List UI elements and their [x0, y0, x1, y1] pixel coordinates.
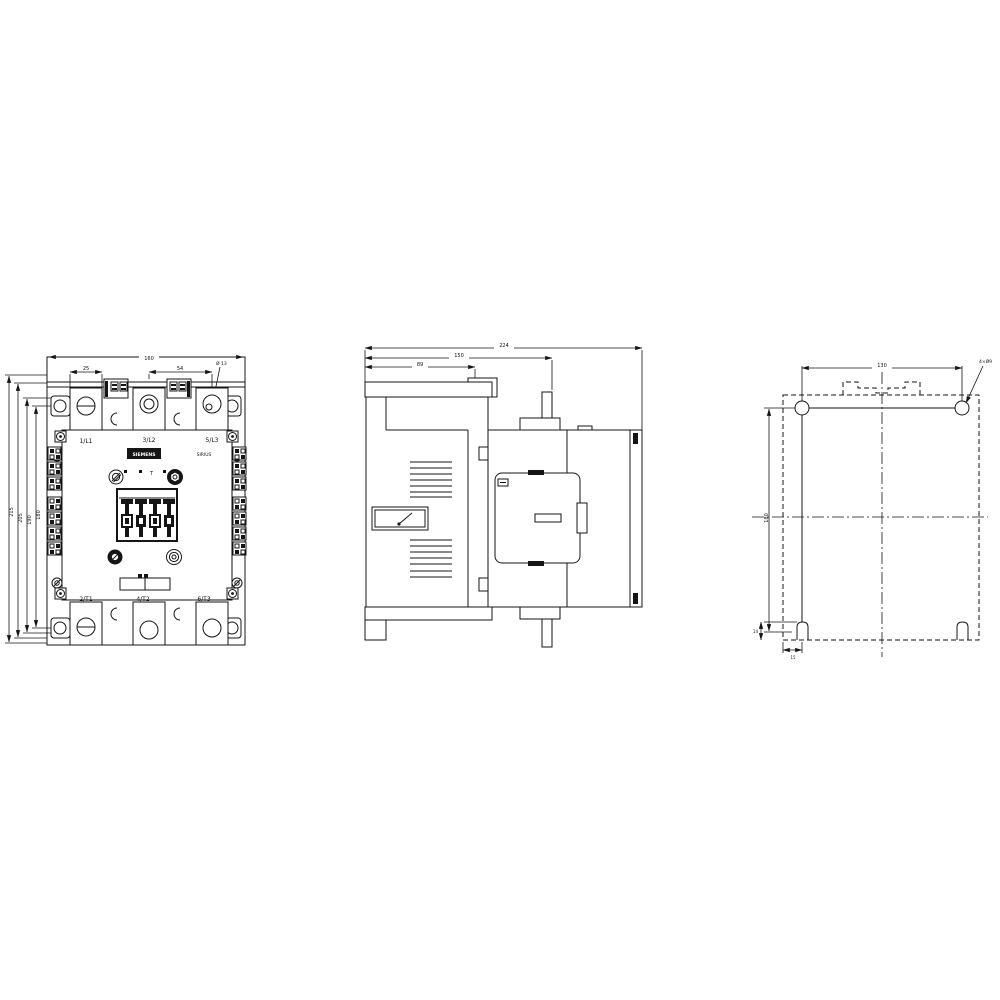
terminal-hole-L3: [203, 395, 221, 413]
clip-hook: [111, 608, 117, 620]
vent-slats-lower: [410, 540, 452, 577]
plate-tab: [138, 574, 142, 578]
dim-pole-pitch: 54: [177, 366, 183, 372]
contactor-dimension-drawing: 215 205 190 180 25 54 Ø 13 160: [0, 0, 1000, 1000]
bottom-terminal-shelf: [365, 607, 492, 620]
mounting-view: 130 4×Ø9 180 14 15: [752, 358, 992, 660]
dim-slot-height: 14: [753, 629, 759, 634]
dim-hole-pitch-v: 180: [764, 513, 770, 523]
coil-mark-dot: [124, 470, 127, 473]
rear-rail: [630, 430, 642, 607]
coil-mark-dot: [163, 470, 166, 473]
clip-hook: [174, 608, 180, 620]
din-tab-bottom: [542, 619, 552, 647]
side-foot: [365, 620, 386, 640]
coil-mark-dot: [139, 470, 142, 473]
mounting-hole-note: 4×Ø9: [979, 358, 992, 365]
brand-label: SIEMENS: [132, 452, 155, 458]
terminal-label-3L2: 3/L2: [143, 437, 156, 444]
accessory-slot: [535, 514, 561, 522]
dim-height-outer: 215: [9, 507, 15, 517]
aux-contact-strip-right: [233, 447, 246, 555]
mounting-slot-left: [797, 622, 808, 640]
terminal-hole-T3: [203, 619, 221, 637]
series-label: SIRIUS: [197, 452, 212, 458]
mounting-hole-left: [795, 401, 809, 415]
aux-terminal-box-right: [167, 379, 191, 398]
dim-slot-offset: 15: [790, 655, 796, 660]
coil-terminal-screw-bottom-right: [167, 550, 182, 565]
dim-height-body: 205: [18, 513, 24, 523]
dim-terminal-width: 25: [83, 366, 89, 372]
side-view: 224 150 89: [365, 342, 642, 647]
din-tab-top: [542, 392, 552, 418]
hidden-yoke-profile: [843, 382, 920, 395]
front-view: 215 205 190 180 25 54 Ø 13 160: [5, 353, 246, 645]
vent-slats-upper: [410, 462, 452, 497]
clip-hook: [174, 413, 180, 425]
aux-contact-strip-left: [48, 447, 61, 555]
mounting-slot-right: [957, 622, 968, 640]
dim-overall-width: 160: [144, 356, 154, 362]
technical-drawing-page: 215 205 190 180 25 54 Ø 13 160: [0, 0, 1000, 1000]
plate-tab: [144, 574, 148, 578]
dim-hole-dia: Ø 13: [216, 360, 227, 367]
dim-height-frame: 190: [27, 515, 33, 525]
side-label-plate: [372, 507, 428, 530]
aux-terminal-box-left: [104, 379, 128, 398]
mounting-outline: [783, 395, 979, 640]
coil-terminal-screw-top-right: [167, 469, 183, 485]
accessory-clip-top: [528, 470, 544, 475]
coil-terminal-block: [117, 489, 177, 541]
terminal-label-1L1: 1/L1: [80, 438, 93, 445]
accessory-block: [495, 470, 587, 566]
accessory-clip-bottom: [528, 561, 544, 566]
terminal-hole-T2: [140, 621, 158, 639]
coil-terminal-screw-bottom-left: [108, 550, 123, 565]
dim-depth-front: 89: [417, 362, 423, 368]
clip-hook: [111, 413, 117, 425]
dim-depth-body: 150: [454, 353, 464, 359]
top-terminal-shelf: [365, 382, 492, 397]
dim-hole-pitch-h: 130: [877, 363, 887, 369]
mounting-hole-right: [955, 401, 969, 415]
coil-terminal-screw-top-left: [109, 470, 123, 484]
terminal-label-5L3: 5/L3: [206, 437, 219, 444]
front-bottom-terminals: [51, 602, 241, 645]
dim-depth-overall: 224: [499, 343, 509, 349]
dim-hole-spacing-v: 180: [36, 510, 42, 520]
terminal-hole-L2: [140, 395, 158, 413]
